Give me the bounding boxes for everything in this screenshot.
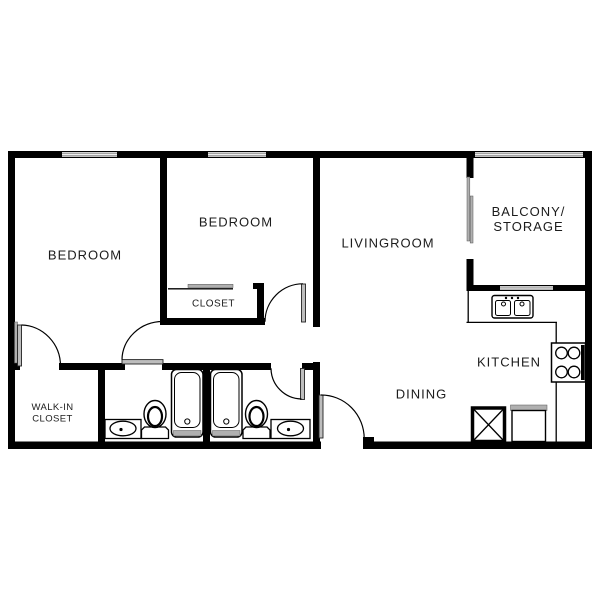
wall-bottom-left-segment bbox=[8, 442, 321, 450]
faucet-dot bbox=[517, 297, 519, 299]
wall-left bbox=[8, 151, 15, 449]
bathroom-1-door bbox=[122, 321, 163, 364]
bedroom-middle-label: BEDROOM bbox=[199, 215, 273, 230]
faucet-dot bbox=[511, 297, 513, 299]
bathtub-2 bbox=[211, 370, 243, 438]
walk-in-closet-door bbox=[15, 322, 61, 366]
vanity-sink-1 bbox=[105, 420, 141, 439]
bathroom-2-door bbox=[271, 368, 305, 399]
dining-entry-door bbox=[319, 395, 364, 439]
room-labels: BEDROOM BEDROOM CLOSET LIVINGROOM BALCON… bbox=[31, 204, 565, 425]
stove bbox=[552, 343, 586, 382]
walkin-label-line1: WALK-IN bbox=[31, 402, 73, 413]
wall-bathroom-divider bbox=[203, 365, 210, 442]
wall-hall-north bbox=[160, 318, 265, 325]
balcony-label-line1: BALCONY/ bbox=[492, 204, 566, 219]
dining-label: DINING bbox=[396, 387, 448, 402]
wall-living-upper bbox=[313, 157, 320, 327]
kitchen-window bbox=[500, 285, 553, 291]
refrigerator bbox=[511, 405, 548, 442]
bedroom-left-label: BEDROOM bbox=[48, 248, 122, 263]
door-jamb bbox=[15, 322, 18, 363]
wall-bedroom-divider bbox=[160, 157, 167, 323]
bathtub-1 bbox=[172, 370, 204, 438]
bathroom-2-fixtures bbox=[211, 370, 311, 439]
wall-walkin-right bbox=[98, 363, 105, 442]
sliding-glass-door bbox=[467, 177, 473, 243]
water-heater-x-box bbox=[473, 408, 505, 442]
toilet-1 bbox=[142, 401, 169, 439]
balcony-window bbox=[475, 151, 583, 158]
bathroom-1-fixtures bbox=[105, 370, 203, 439]
bedroom-left-window bbox=[62, 151, 117, 158]
floor-plan-drawing: BEDROOM BEDROOM CLOSET LIVINGROOM BALCON… bbox=[0, 0, 600, 600]
wall-hall-south-1 bbox=[59, 363, 125, 370]
walkin-label-line2: CLOSET bbox=[32, 414, 72, 425]
floor-plan-page: BEDROOM BEDROOM CLOSET LIVINGROOM BALCON… bbox=[0, 0, 600, 600]
balcony-label-line2: STORAGE bbox=[493, 219, 563, 234]
livingroom-label: LIVINGROOM bbox=[341, 236, 434, 251]
faucet-dot bbox=[505, 297, 507, 299]
wall-balcony-top bbox=[467, 157, 474, 178]
kitchen-label: KITCHEN bbox=[477, 355, 541, 370]
toilet-2 bbox=[243, 401, 270, 439]
vanity-sink-2 bbox=[271, 420, 310, 439]
closet-shelf bbox=[168, 284, 233, 289]
wall-right bbox=[585, 151, 592, 449]
bedroom-middle-door bbox=[265, 284, 306, 322]
wall-closet-right-cap bbox=[253, 283, 264, 289]
bedroom-middle-window bbox=[208, 151, 266, 158]
closet-label: CLOSET bbox=[192, 299, 235, 310]
closet-rod bbox=[188, 284, 233, 287]
kitchen-sink bbox=[492, 296, 533, 319]
